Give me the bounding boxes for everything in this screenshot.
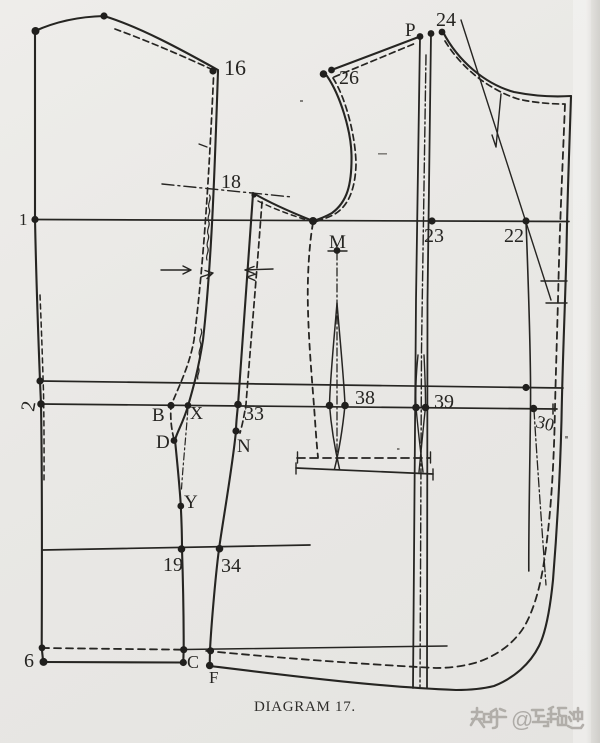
svg-text:34: 34 — [221, 555, 241, 577]
svg-text:39: 39 — [434, 391, 454, 413]
svg-text:18: 18 — [221, 171, 241, 193]
svg-text:C: C — [187, 652, 199, 672]
svg-text:26: 26 — [339, 67, 359, 89]
svg-text:6: 6 — [24, 650, 34, 672]
svg-text:33: 33 — [244, 403, 264, 425]
svg-text:DIAGRAM 17.: DIAGRAM 17. — [254, 699, 356, 715]
svg-text:X: X — [190, 403, 203, 423]
svg-text:B: B — [152, 405, 165, 426]
svg-text:1: 1 — [19, 210, 28, 229]
svg-text:38: 38 — [355, 387, 375, 409]
svg-text:19: 19 — [163, 554, 183, 576]
svg-text:N: N — [237, 436, 251, 457]
svg-text:16: 16 — [224, 55, 246, 80]
svg-text:D: D — [156, 432, 170, 453]
svg-text:30: 30 — [534, 411, 556, 435]
svg-text:24: 24 — [436, 9, 456, 31]
svg-text:23: 23 — [424, 225, 444, 247]
svg-text:@: @ — [511, 707, 533, 732]
svg-text:Y: Y — [184, 492, 198, 513]
svg-text:22: 22 — [504, 225, 524, 247]
svg-text:M: M — [329, 232, 346, 253]
svg-text:F: F — [209, 668, 218, 687]
svg-text:2: 2 — [17, 399, 40, 413]
svg-text:P: P — [405, 20, 416, 41]
